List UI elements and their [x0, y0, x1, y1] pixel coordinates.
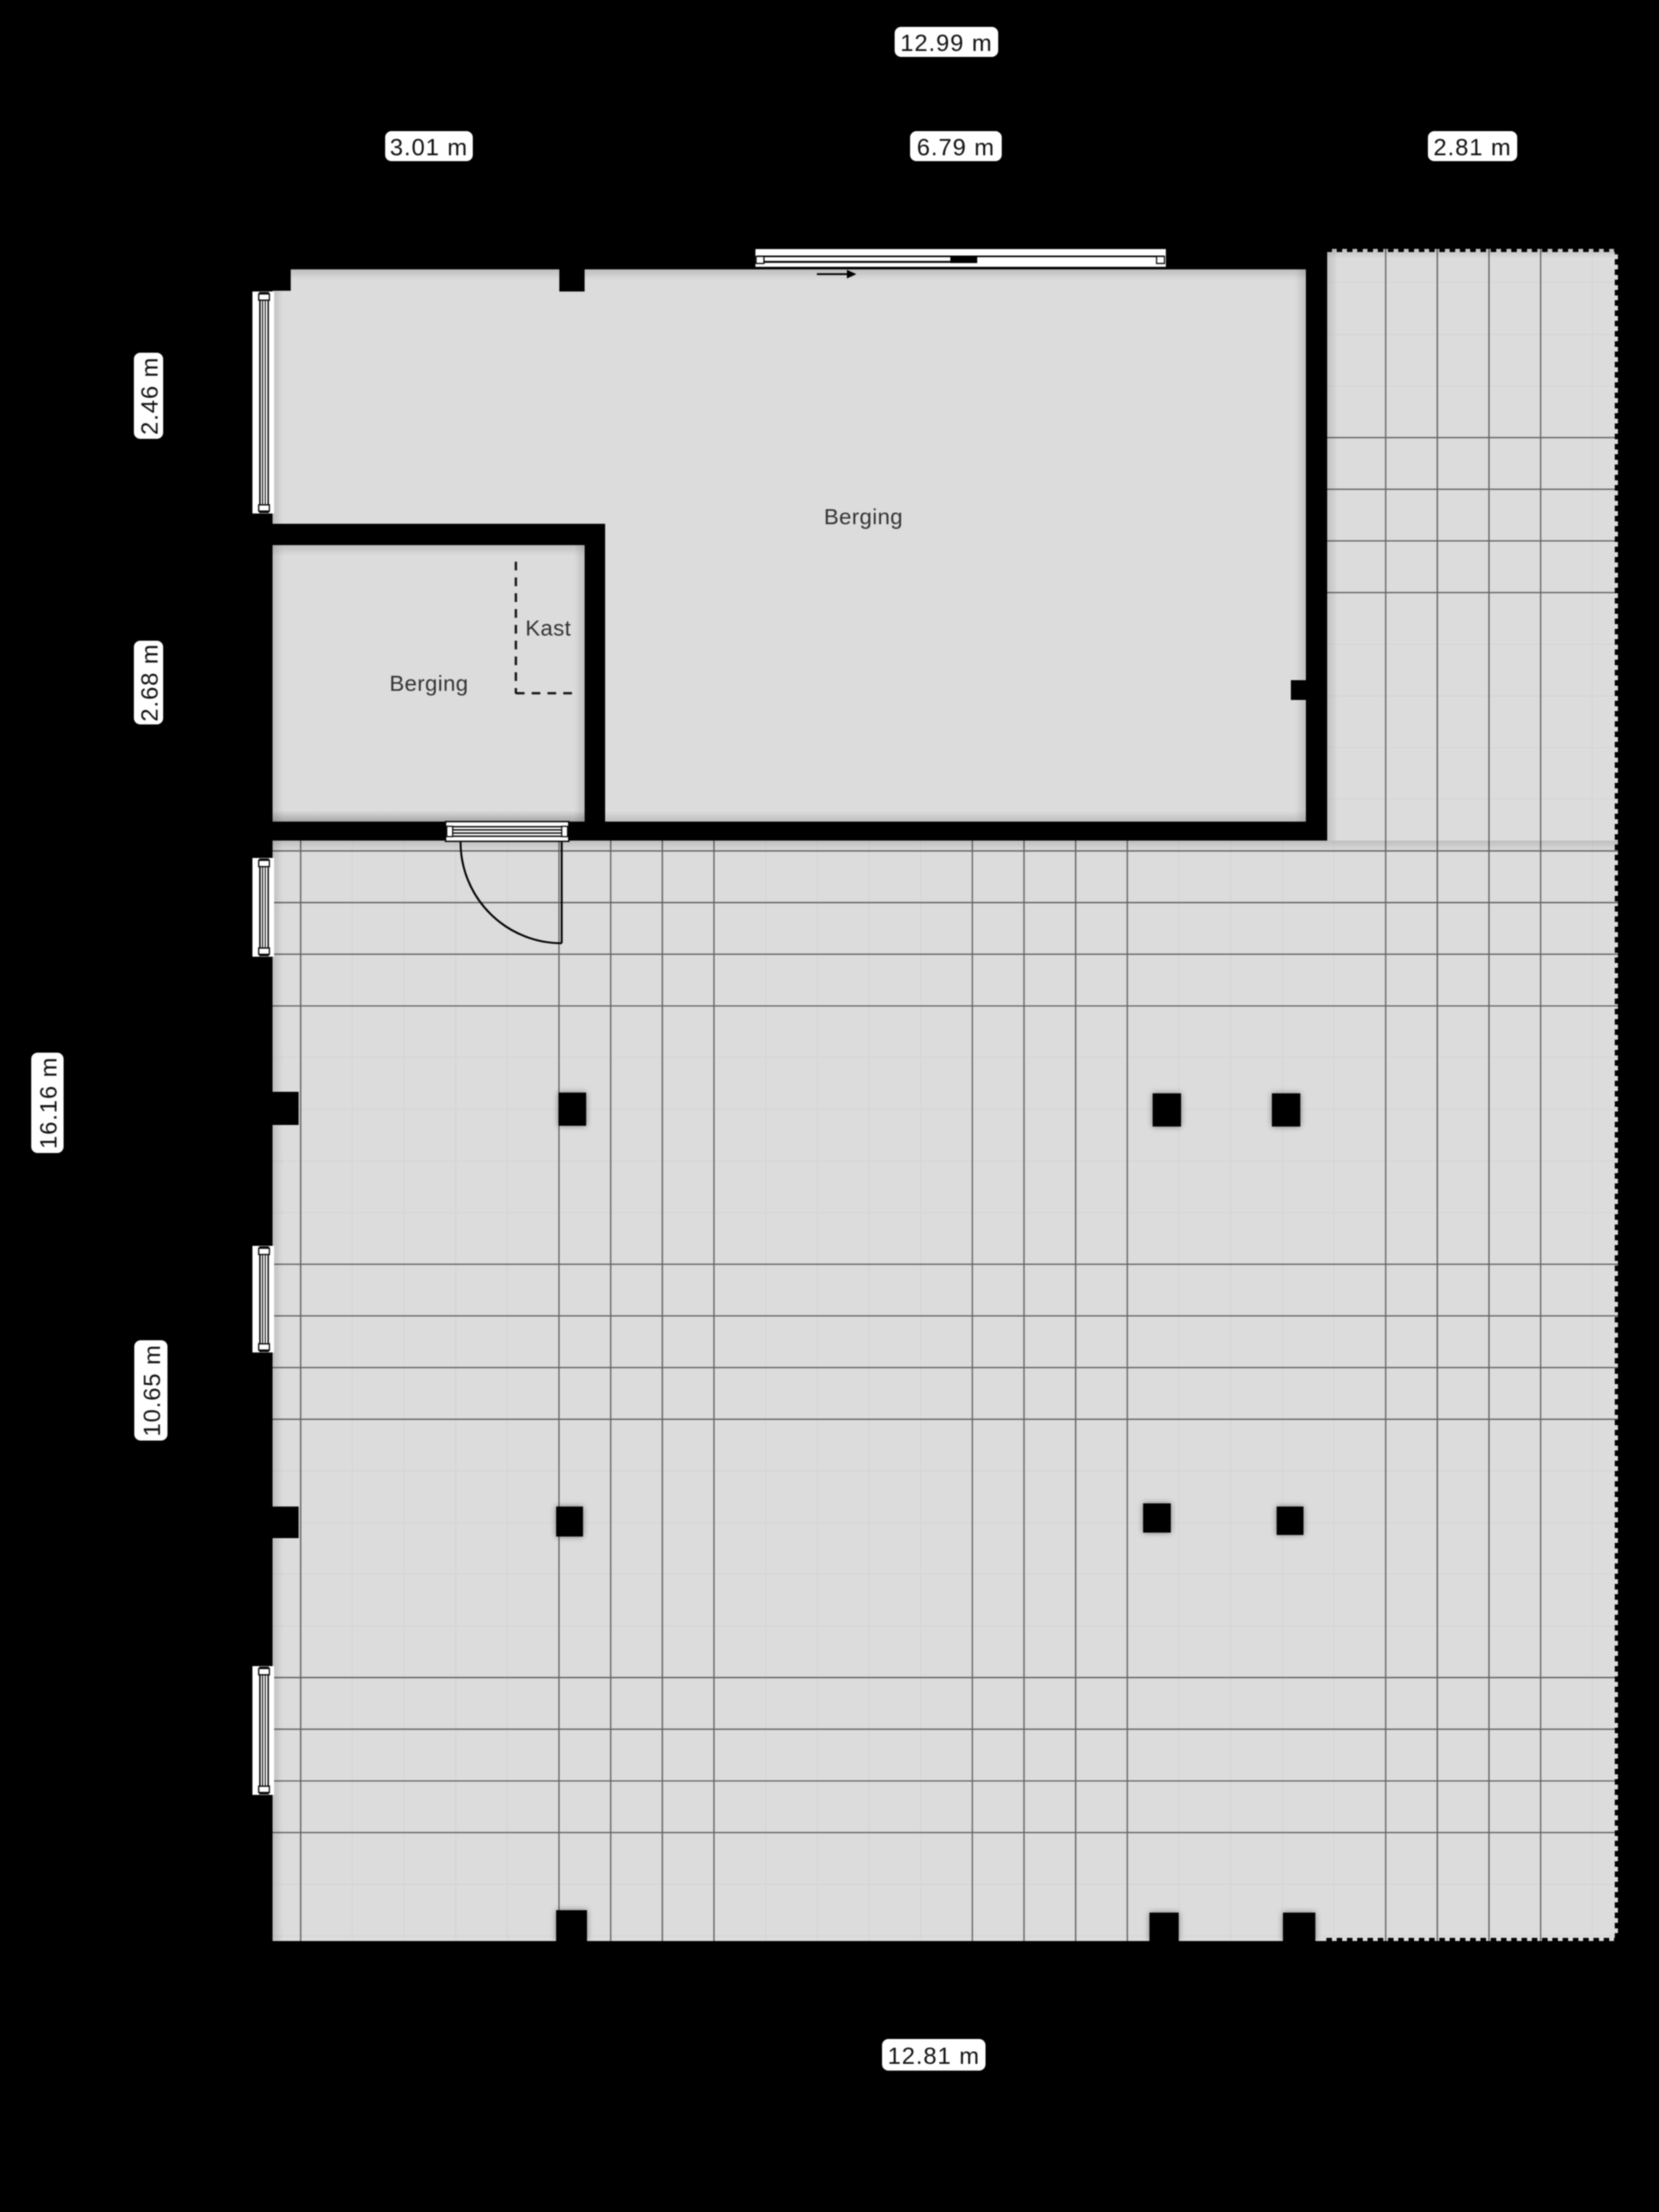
svg-text:16.16 m: 16.16 m — [36, 1057, 62, 1149]
svg-text:2.46 m: 2.46 m — [137, 357, 164, 435]
svg-text:6.79 m: 6.79 m — [917, 135, 995, 161]
svg-text:10.65 m: 10.65 m — [140, 1345, 166, 1437]
svg-text:3.01 m: 3.01 m — [390, 135, 468, 161]
svg-text:Kast: Kast — [525, 616, 571, 641]
svg-text:Berging: Berging — [824, 505, 903, 529]
svg-text:Berging: Berging — [389, 671, 468, 696]
svg-text:2.68 m: 2.68 m — [137, 644, 164, 722]
svg-text:2.81 m: 2.81 m — [1434, 135, 1512, 161]
svg-text:12.99 m: 12.99 m — [901, 31, 993, 57]
svg-text:12.81 m: 12.81 m — [888, 2044, 980, 2070]
